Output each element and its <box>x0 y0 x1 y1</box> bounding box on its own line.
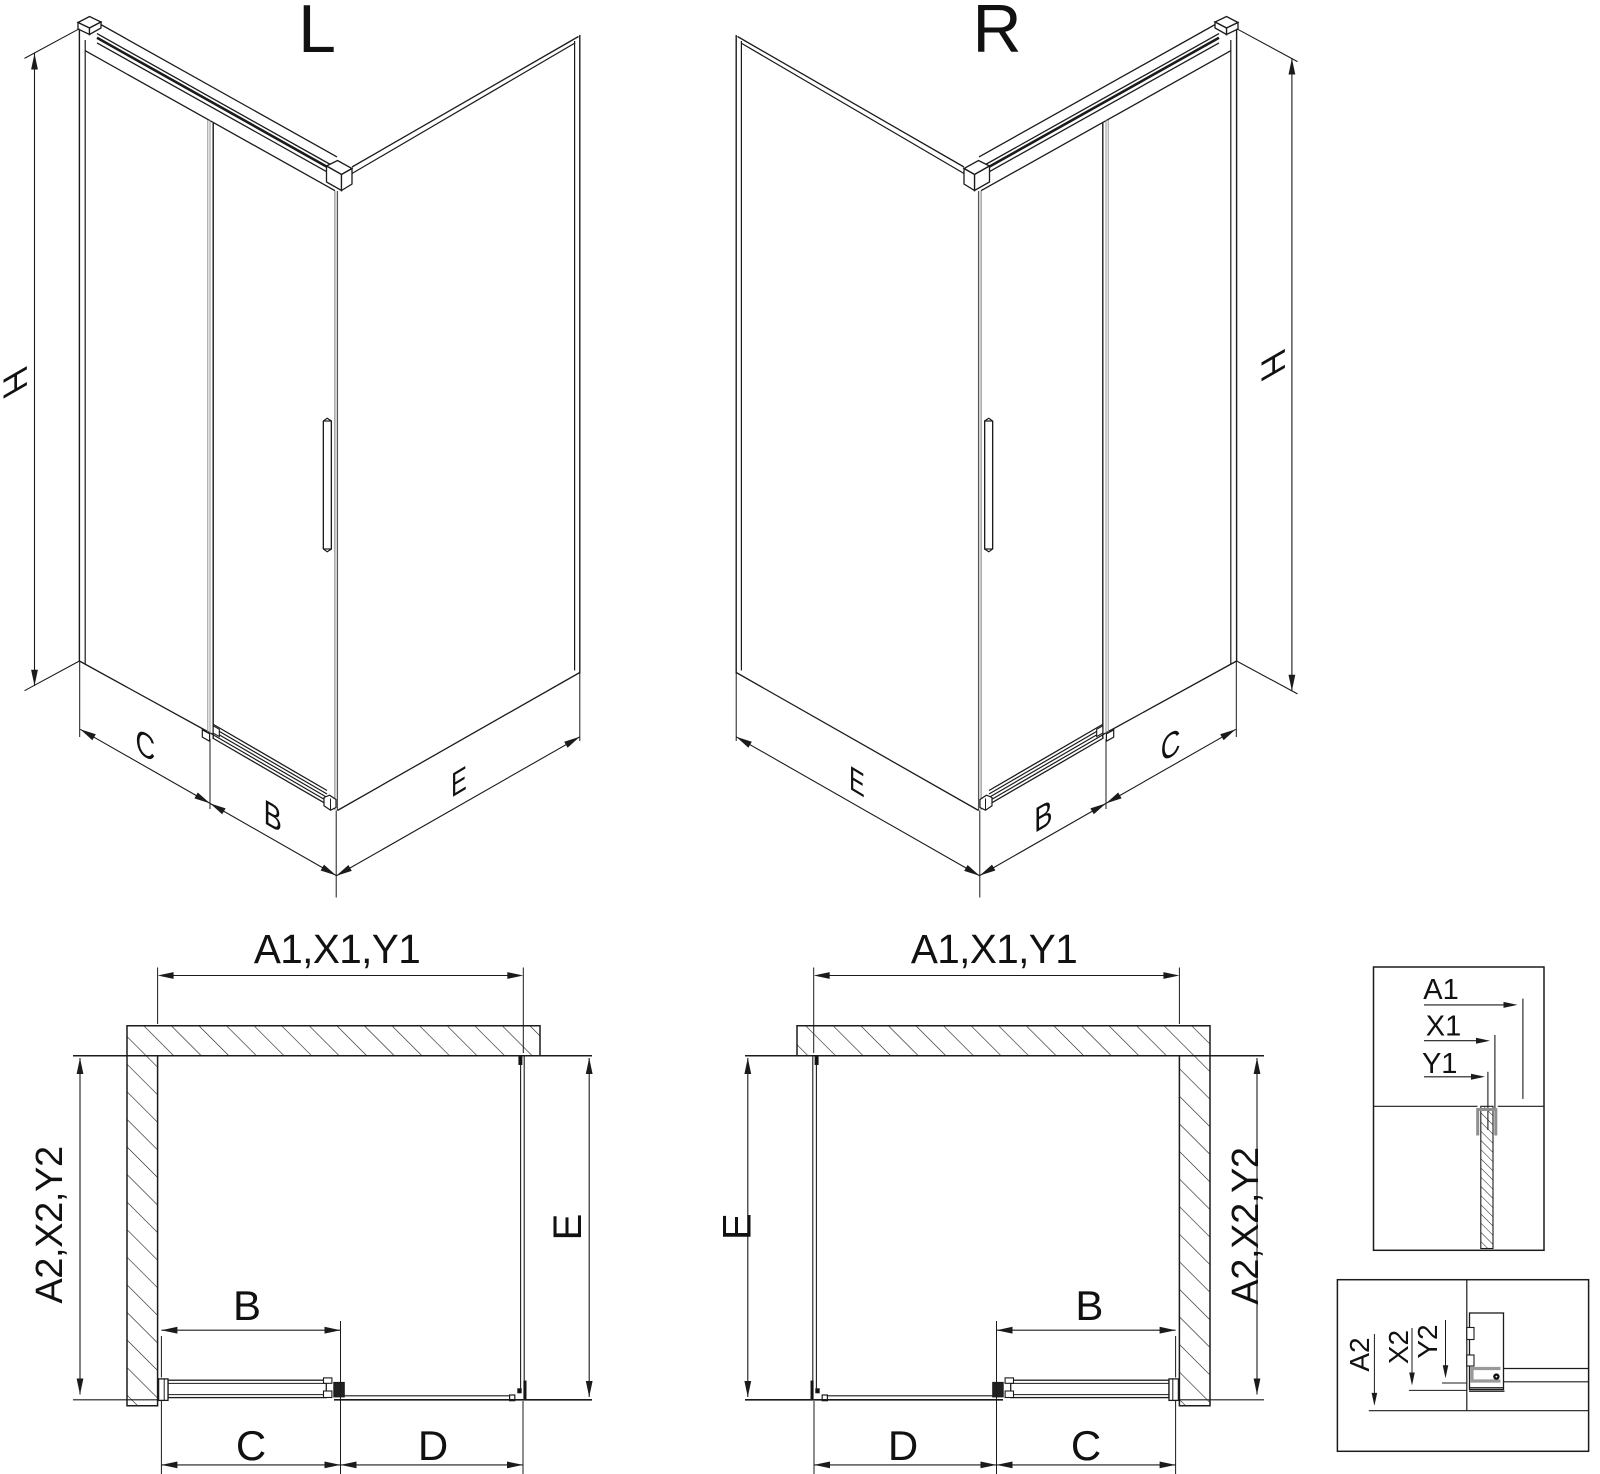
svg-text:E: E <box>546 1214 590 1241</box>
svg-text:C: C <box>236 1422 266 1469</box>
svg-text:D: D <box>418 1422 448 1469</box>
svg-text:C: C <box>1071 1422 1101 1469</box>
svg-text:R: R <box>972 0 1021 67</box>
svg-text:E: E <box>716 1213 760 1240</box>
svg-text:B: B <box>1075 1282 1103 1329</box>
svg-text:X1: X1 <box>1426 1011 1461 1043</box>
svg-text:A1,X1,Y1: A1,X1,Y1 <box>911 926 1077 972</box>
svg-text:D: D <box>888 1422 918 1469</box>
svg-text:Y1: Y1 <box>1422 1048 1457 1080</box>
svg-text:B: B <box>233 1282 261 1329</box>
svg-text:L: L <box>298 0 336 67</box>
svg-text:A1,X1,Y1: A1,X1,Y1 <box>254 926 420 972</box>
svg-text:A2: A2 <box>1344 1337 1375 1371</box>
svg-text:A1: A1 <box>1423 974 1458 1006</box>
svg-text:X2: X2 <box>1383 1330 1414 1364</box>
svg-text:Y2: Y2 <box>1412 1324 1443 1358</box>
svg-text:A2,X2,Y2: A2,X2,Y2 <box>29 1146 71 1303</box>
svg-text:A2,X2,Y2: A2,X2,Y2 <box>1225 1147 1267 1304</box>
